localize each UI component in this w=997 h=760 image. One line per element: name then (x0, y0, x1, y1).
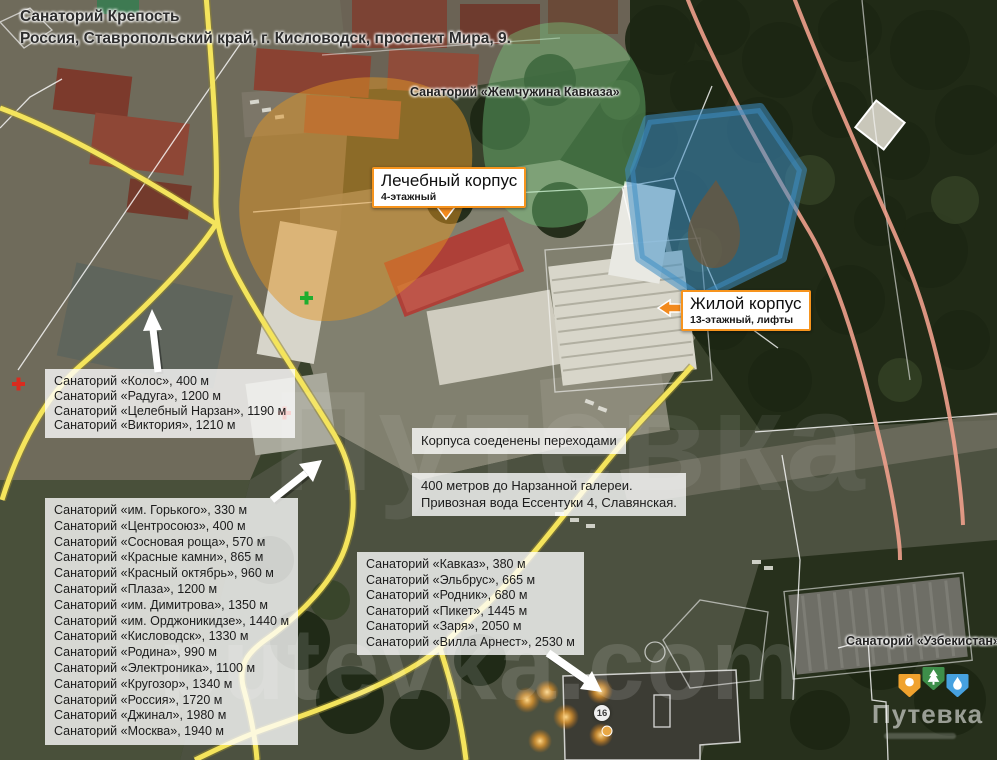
note-narzan-line2: Привозная вода Ессентуки 4, Славянская. (421, 495, 677, 512)
list-item: Санаторий «им. Димитрова», 1350 м (54, 598, 289, 614)
route-number-badge: 16 (594, 705, 610, 721)
sun-pin-icon (898, 672, 921, 698)
label-pearl-of-caucasus: Санаторий «Жемчужина Кавказа» (410, 85, 620, 99)
list-item: Санаторий «Эльбрус», 665 м (366, 573, 575, 589)
note-narzan-gallery: 400 метров до Нарзанной галереи. Привозн… (412, 473, 686, 516)
list-item: Санаторий «Заря», 2050 м (366, 619, 575, 635)
list-item: Санаторий «Колос», 400 м (54, 374, 286, 389)
list-item: Санаторий «Вилла Арнест», 2530 м (366, 635, 575, 651)
putevka-logo: Путевка (872, 662, 996, 739)
label-uzbekistan: Санаторий «Узбекистан» (846, 634, 997, 648)
list-item: Санаторий «Родник», 680 м (366, 588, 575, 604)
list-item: Санаторий «Электроника», 1100 м (54, 661, 289, 677)
list-item: Санаторий «Радуга», 1200 м (54, 389, 286, 404)
callout-residential-subtitle: 13-этажный, лифты (690, 314, 802, 326)
list-item: Санаторий «Родина», 990 м (54, 645, 289, 661)
callout-medical-subtitle: 4-этажный (381, 191, 517, 203)
nearby-sanatoriums-west-list: Санаторий «Колос», 400 мСанаторий «Радуг… (45, 369, 295, 438)
list-item: Санаторий «Красный октябрь», 960 м (54, 566, 289, 582)
list-item: Санаторий «Москва», 1940 м (54, 724, 289, 740)
list-item: Санаторий «Кругозор», 1340 м (54, 677, 289, 693)
nearby-sanatoriums-south-list: Санаторий «Кавказ», 380 мСанаторий «Эльб… (357, 552, 584, 655)
list-item: Санаторий «Красные камни», 865 м (54, 550, 289, 566)
poi-dot (602, 726, 612, 736)
list-item: Санаторий «им. Горького», 330 м (54, 503, 289, 519)
putevka-logo-icons (898, 662, 996, 698)
list-item: Санаторий «Пикет», 1445 м (366, 604, 575, 620)
list-item: Санаторий «Центросоюз», 400 м (54, 519, 289, 535)
putevka-tagline-blur (884, 733, 956, 739)
water-drop-pin-icon (946, 672, 969, 698)
list-item: Санаторий «Целебный Нарзан», 1190 м (54, 404, 286, 419)
tree-pin-icon (922, 665, 945, 691)
list-item: Санаторий «Виктория», 1210 м (54, 418, 286, 433)
putevka-brand-text: Путевка (872, 699, 996, 730)
list-item: Санаторий «Кавказ», 380 м (366, 557, 575, 573)
callout-residential-building: Жилой корпус 13-этажный, лифты (681, 290, 811, 331)
list-item: Санаторий «Кисловодск», 1330 м (54, 629, 289, 645)
map-title: Санаторий Крепость Россия, Ставропольски… (20, 6, 511, 50)
list-item: Санаторий «Джинал», 1980 м (54, 708, 289, 724)
note-connected-buildings: Корпуса соеденены переходами (412, 428, 626, 454)
callout-residential-title: Жилой корпус (690, 294, 802, 314)
list-item: Санаторий «Сосновая роща», 570 м (54, 535, 289, 551)
title-line2: Россия, Ставропольский край, г. Кисловод… (20, 28, 511, 50)
list-item: Санаторий «им. Орджоникидзе», 1440 м (54, 614, 289, 630)
list-item: Санаторий «Россия», 1720 м (54, 693, 289, 709)
nearby-sanatoriums-main-list: Санаторий «им. Горького», 330 мСанаторий… (45, 498, 298, 745)
title-line1: Санаторий Крепость (20, 6, 511, 28)
note-narzan-line1: 400 метров до Нарзанной галереи. (421, 478, 677, 495)
callout-medical-title: Лечебный корпус (381, 171, 517, 191)
list-item: Санаторий «Плаза», 1200 м (54, 582, 289, 598)
callout-medical-building: Лечебный корпус 4-этажный (372, 167, 526, 208)
kislovodsk-sanatorium-map: Путевка putevka.com Санаторий Крепость Р… (0, 0, 997, 760)
